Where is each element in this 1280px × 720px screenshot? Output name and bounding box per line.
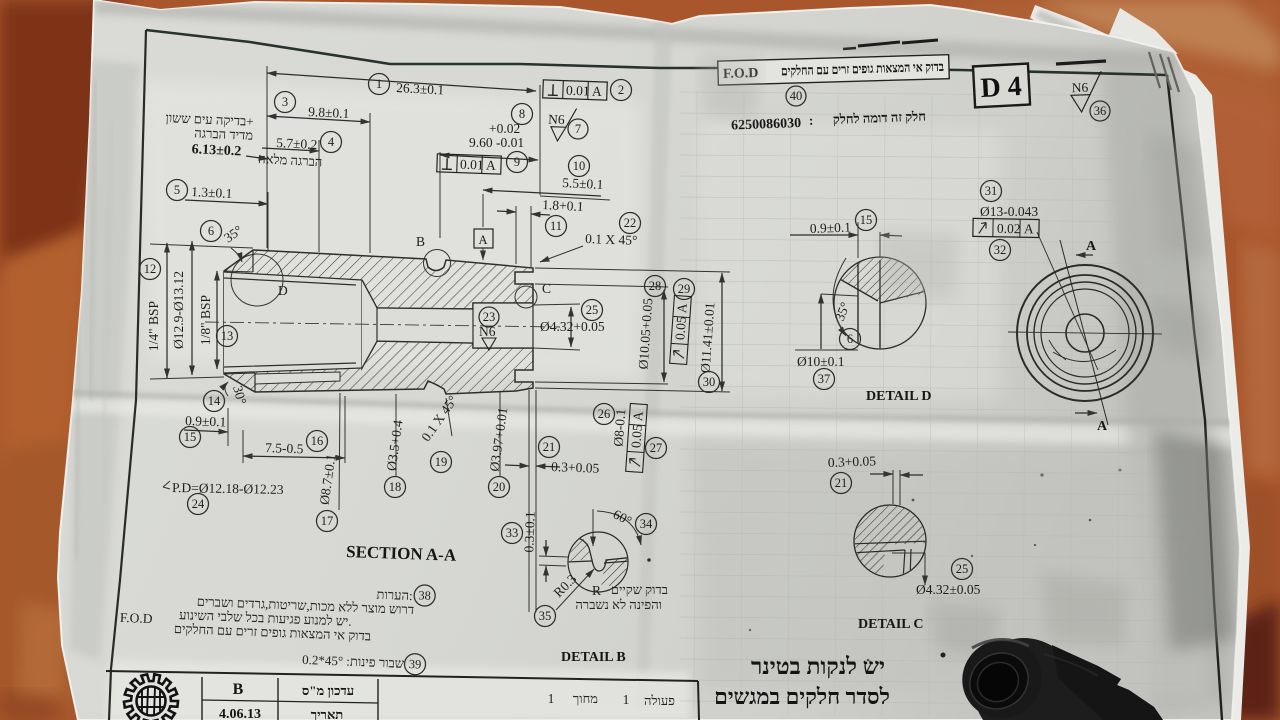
svg-text:21: 21 (835, 476, 848, 490)
svg-text:22: 22 (624, 216, 637, 230)
svg-text:SECTION A-A: SECTION A-A (346, 542, 457, 565)
svg-text:Ø12.9-Ø13.12: Ø12.9-Ø13.12 (171, 271, 186, 349)
svg-text:N6: N6 (1071, 80, 1088, 96)
svg-text:11: 11 (550, 219, 562, 233)
svg-text:N6: N6 (479, 324, 496, 339)
svg-text:13: 13 (221, 329, 234, 343)
svg-text:9.8±0.1: 9.8±0.1 (308, 104, 350, 121)
svg-text:37: 37 (818, 372, 831, 386)
svg-text:1/8" BSP: 1/8" BSP (198, 295, 213, 345)
svg-text:9: 9 (514, 155, 520, 169)
svg-text:A: A (592, 84, 603, 99)
svg-text:26: 26 (598, 407, 611, 421)
svg-text:Ø13-0.043: Ø13-0.043 (980, 204, 1038, 219)
svg-text:32: 32 (994, 243, 1007, 257)
svg-text:B: B (233, 681, 244, 698)
svg-text:24: 24 (192, 497, 205, 511)
svg-text:7: 7 (575, 122, 581, 136)
svg-text:38: 38 (418, 588, 431, 602)
svg-text:F.O.D: F.O.D (120, 610, 153, 626)
svg-text:לסדר חלקים במגשים: לסדר חלקים במגשים (714, 684, 890, 709)
svg-text:A: A (1024, 221, 1034, 236)
svg-text:26.3±0.1: 26.3±0.1 (396, 80, 445, 97)
svg-text:A: A (1086, 239, 1097, 254)
svg-text:0.02: 0.02 (997, 221, 1021, 236)
svg-text:5: 5 (174, 183, 180, 197)
svg-text:10: 10 (573, 159, 586, 173)
svg-text:0.3+0.05: 0.3+0.05 (828, 453, 877, 470)
svg-text:8: 8 (519, 107, 525, 121)
svg-text:6.13±0.2: 6.13±0.2 (191, 142, 241, 159)
svg-text:יש לנקות בטינר: יש לנקות בטינר (751, 654, 885, 679)
svg-text:4: 4 (328, 135, 335, 149)
svg-text:21: 21 (543, 440, 556, 454)
svg-text:Ø4.32±0.05: Ø4.32±0.05 (916, 582, 981, 597)
svg-text:36: 36 (1094, 104, 1107, 118)
svg-text:DETAIL D: DETAIL D (866, 389, 931, 404)
svg-text:A: A (478, 233, 487, 247)
svg-text:P.D=Ø12.18-Ø12.23: P.D=Ø12.18-Ø12.23 (172, 480, 284, 497)
svg-text:2: 2 (618, 83, 624, 97)
svg-text:1/4" BSP: 1/4" BSP (146, 301, 161, 351)
svg-text:A: A (486, 158, 497, 173)
svg-text:Ø4.32+0.05: Ø4.32+0.05 (540, 319, 605, 334)
svg-text:15: 15 (860, 213, 873, 227)
svg-text:+0.02: +0.02 (489, 121, 520, 136)
svg-text:0.3+0.05: 0.3+0.05 (551, 459, 600, 476)
svg-text:A: A (630, 411, 646, 422)
svg-text:מחוך: מחוך (573, 691, 598, 706)
svg-text:40: 40 (790, 89, 803, 103)
svg-text:18: 18 (389, 480, 402, 494)
svg-text:6: 6 (208, 224, 214, 238)
svg-text:34: 34 (640, 517, 653, 531)
svg-text:5.5±0.1: 5.5±0.1 (562, 175, 604, 192)
svg-text:N6: N6 (548, 112, 565, 128)
svg-text:25: 25 (586, 303, 599, 317)
svg-text:1.3±0.1: 1.3±0.1 (191, 184, 233, 201)
svg-text:1.8+0.1: 1.8+0.1 (542, 197, 584, 214)
svg-text:Ø10±0.1: Ø10±0.1 (797, 354, 845, 369)
svg-text:D: D (278, 283, 288, 298)
svg-text:20: 20 (493, 480, 506, 494)
svg-text:29: 29 (678, 282, 691, 296)
svg-text:28: 28 (649, 279, 662, 293)
svg-text:D 4: D 4 (980, 71, 1023, 104)
svg-text:30: 30 (703, 375, 716, 389)
svg-text:DETAIL B: DETAIL B (561, 650, 626, 665)
svg-text:תאריך: תאריך (311, 707, 343, 720)
svg-text:בדוק שקיים: בדוק שקיים (611, 582, 668, 597)
svg-text:23: 23 (483, 310, 496, 324)
svg-text:33: 33 (506, 526, 519, 540)
svg-text:0.3±0.1: 0.3±0.1 (521, 511, 537, 553)
svg-text:B: B (416, 234, 425, 249)
svg-text:35: 35 (539, 609, 552, 623)
svg-text:מדיד הברגה: מדיד הברגה (194, 125, 254, 143)
svg-text:R: R (592, 583, 601, 598)
svg-text:פעולה: פעולה (644, 693, 675, 708)
svg-text:A: A (674, 303, 690, 314)
svg-text:Ø8-0.1: Ø8-0.1 (611, 408, 629, 447)
svg-text:DETAIL C: DETAIL C (858, 617, 923, 632)
svg-text:1: 1 (548, 691, 555, 706)
svg-text:9.60 -0.01: 9.60 -0.01 (469, 135, 524, 150)
svg-text:15: 15 (184, 430, 197, 444)
svg-text:31: 31 (985, 184, 998, 198)
svg-text:16: 16 (311, 434, 324, 448)
svg-text:0.05: 0.05 (628, 424, 645, 449)
svg-text:27: 27 (650, 441, 663, 455)
svg-text:17: 17 (321, 514, 334, 528)
svg-text:0.1 X 45°: 0.1 X 45° (585, 231, 638, 248)
svg-text:1: 1 (623, 692, 630, 707)
svg-text:14: 14 (208, 394, 221, 408)
svg-text:12: 12 (144, 262, 157, 276)
svg-text:6: 6 (847, 332, 853, 346)
svg-text:7.5-0.5: 7.5-0.5 (265, 440, 304, 456)
svg-text:1: 1 (376, 77, 382, 91)
svg-text:0.01: 0.01 (566, 83, 590, 99)
svg-text:3: 3 (282, 95, 288, 109)
svg-text:והפינה לא נשברה: והפינה לא נשברה (575, 597, 662, 612)
svg-text:0.01: 0.01 (460, 157, 484, 173)
svg-text:A: A (1097, 419, 1108, 434)
svg-text:C: C (542, 281, 551, 296)
svg-text:4.06.13: 4.06.13 (219, 707, 261, 720)
svg-text:19: 19 (435, 455, 448, 469)
svg-text:0.05: 0.05 (672, 316, 689, 341)
svg-text:עדכון מ"ס: עדכון מ"ס (302, 683, 354, 698)
svg-text:39: 39 (409, 657, 422, 671)
svg-text::: : (809, 113, 814, 128)
svg-text:0.9±0.1: 0.9±0.1 (810, 220, 852, 236)
svg-text:25: 25 (956, 562, 969, 576)
svg-text:5.7±0.2: 5.7±0.2 (276, 135, 318, 152)
